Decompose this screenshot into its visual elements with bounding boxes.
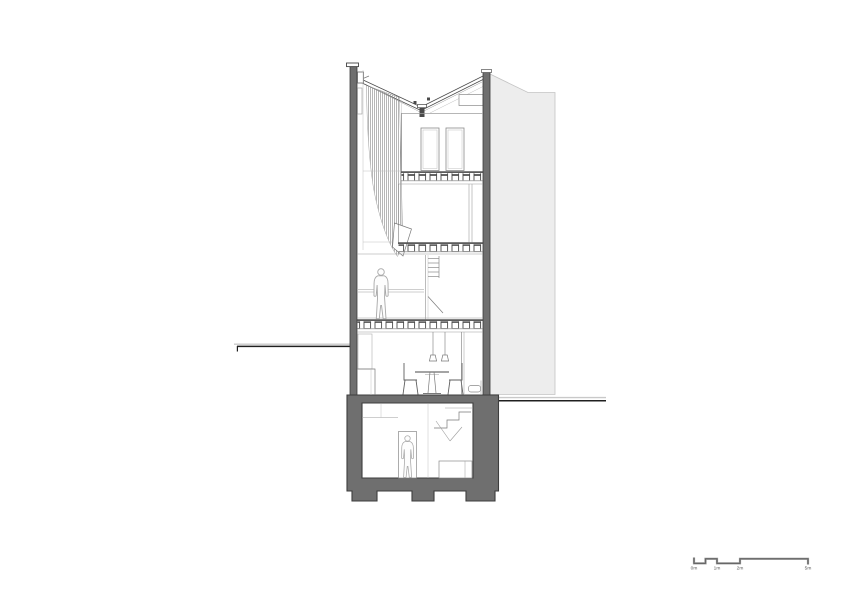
- floor-band-top: [401, 171, 483, 173]
- door-swing: [428, 297, 443, 314]
- left-parapet-coping: [347, 63, 359, 67]
- basement-interior: [362, 404, 473, 478]
- adjacent-building: [490, 74, 555, 395]
- floor-band-low: [357, 319, 483, 321]
- toilet: [469, 381, 482, 396]
- roof-upstand: [459, 95, 483, 106]
- scale-label-5m: 5m: [805, 566, 812, 572]
- scale-label-1m: 1m: [714, 566, 721, 572]
- ground-line-left: [234, 344, 352, 351]
- door-swing: [436, 421, 450, 441]
- scale-bar: 0m 1m 2m 5m: [691, 558, 812, 572]
- scale-label-2m: 2m: [737, 566, 744, 572]
- ground-floor-interior: [357, 332, 483, 395]
- kitchen-counter: [357, 369, 375, 395]
- dining-table: [415, 372, 449, 394]
- basement-shell: [347, 395, 499, 501]
- left-wall: [350, 66, 357, 397]
- basement-stair: [434, 408, 473, 441]
- top-floor-interior: [401, 114, 483, 172]
- tall-cabinet: [358, 334, 372, 369]
- ground-line-right: [494, 398, 606, 401]
- right-wall: [483, 72, 490, 397]
- third-floor-interior: [357, 254, 483, 320]
- section-drawing: 0m 1m 2m 5m: [0, 0, 842, 595]
- bed: [439, 461, 472, 478]
- floor-band-mid: [398, 242, 483, 244]
- scale-label-0m: 0m: [691, 566, 698, 572]
- chair: [403, 363, 418, 395]
- drawing-sheet: 0m 1m 2m 5m: [0, 0, 842, 595]
- stair-rungs: [428, 256, 439, 278]
- louvre-screen: [363, 86, 412, 257]
- wardrobe-door: [446, 128, 464, 171]
- chair: [448, 363, 463, 395]
- pendant-lights: [429, 332, 448, 361]
- right-parapet-coping: [482, 70, 492, 73]
- door-swing: [450, 427, 462, 441]
- second-floor-interior: [398, 184, 483, 243]
- wardrobe-door: [421, 128, 439, 171]
- person-figure: [374, 269, 388, 319]
- valley-post: [420, 108, 425, 118]
